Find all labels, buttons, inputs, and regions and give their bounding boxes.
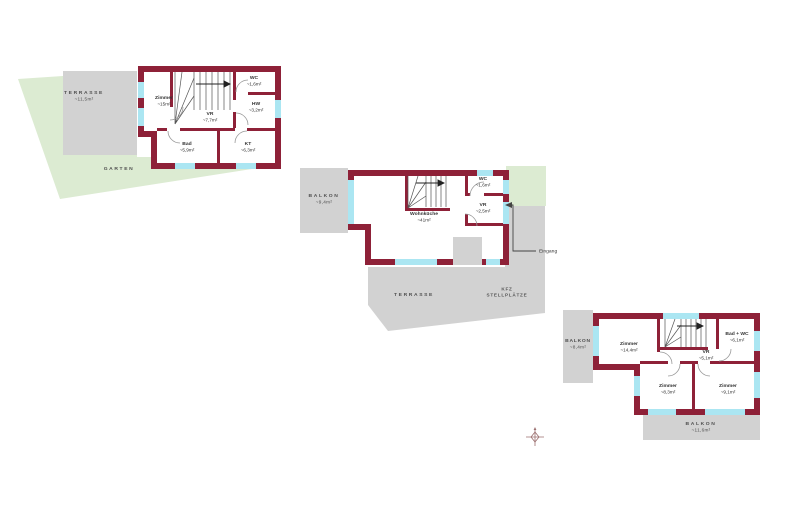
compass-icon bbox=[524, 426, 546, 448]
window bbox=[503, 180, 509, 194]
wall-segment bbox=[151, 163, 281, 169]
wall-segment bbox=[710, 361, 754, 364]
terrace-area-value: ~11,5m² bbox=[64, 96, 104, 102]
window bbox=[648, 409, 676, 415]
terrace-area-plan-a bbox=[63, 71, 137, 155]
room-label-vr: VR ~7,7m² bbox=[203, 111, 218, 123]
room-label-wc: WC ~1,6m² bbox=[247, 75, 262, 87]
window bbox=[175, 163, 195, 169]
balcony-label-plan-b: BALKON ~9,4m² bbox=[309, 193, 340, 205]
entry-door-glass bbox=[503, 202, 509, 224]
room-label-wohnkueche: Wohnküche ~41m² bbox=[410, 211, 438, 223]
terrace-step bbox=[453, 237, 482, 265]
window bbox=[593, 326, 599, 356]
green-area-plan-b bbox=[506, 166, 546, 206]
balcony-label-west: BALKON ~8,4m² bbox=[565, 338, 591, 350]
window bbox=[754, 331, 760, 351]
window bbox=[348, 180, 354, 224]
wall-segment bbox=[593, 364, 640, 370]
entrance-label: Eingang bbox=[539, 248, 557, 254]
room-label-bad-wc: Bad + WC ~6,1m² bbox=[725, 331, 748, 343]
room-label-wc: WC ~1,6m² bbox=[476, 176, 491, 188]
room-label-vr: VR ~5,1m² bbox=[699, 349, 714, 361]
garden-label: GARTEN bbox=[104, 166, 135, 172]
terrace-label: TERRASSE ~11,5m² bbox=[64, 90, 104, 102]
room-label-zimmer-so: Zimmer ~9,1m² bbox=[719, 383, 737, 395]
room-label-hw: HW ~3,2m² bbox=[249, 101, 264, 113]
terrace-label-plan-b: TERRASSE bbox=[394, 292, 434, 298]
wall-segment bbox=[484, 193, 503, 196]
window bbox=[138, 108, 144, 126]
wall-segment bbox=[465, 223, 503, 226]
garden-name: GARTEN bbox=[104, 166, 135, 172]
window bbox=[138, 82, 144, 98]
room-label-bad: Bad ~5,9m² bbox=[180, 141, 195, 153]
wall-segment bbox=[716, 319, 719, 349]
wall-segment bbox=[217, 131, 220, 163]
room-label-vr: VR ~2,5m² bbox=[476, 202, 491, 214]
wall-segment bbox=[754, 313, 760, 415]
window bbox=[395, 259, 437, 265]
window bbox=[236, 163, 256, 169]
wall-segment bbox=[692, 364, 695, 409]
wall-segment bbox=[180, 128, 235, 131]
window bbox=[486, 259, 500, 265]
balcony-label-south: BALKON ~11,6m² bbox=[686, 421, 717, 433]
window bbox=[275, 100, 281, 118]
room-label-zimmer-sw: Zimmer ~8,3m² bbox=[659, 383, 677, 395]
wall-segment bbox=[233, 112, 236, 128]
room-label-zimmer-gross: Zimmer ~14,4m² bbox=[620, 341, 638, 353]
window bbox=[634, 376, 640, 396]
wall-segment bbox=[138, 66, 281, 72]
wall-segment bbox=[247, 128, 275, 131]
wall-segment bbox=[640, 361, 668, 364]
window bbox=[705, 409, 745, 415]
wall-segment bbox=[465, 193, 470, 196]
window bbox=[663, 313, 699, 319]
wall-segment bbox=[680, 361, 698, 364]
wall-segment bbox=[248, 92, 275, 95]
room-label-kt: KT ~6,3m² bbox=[241, 141, 256, 153]
parking-label: KFZ STELLPLÄTZE bbox=[487, 286, 528, 298]
room-label-zimmer: Zimmer ~15m² bbox=[155, 95, 173, 107]
wall-segment bbox=[233, 72, 236, 100]
wall-segment bbox=[157, 128, 167, 131]
wall-segment bbox=[138, 66, 144, 137]
window bbox=[754, 372, 760, 398]
floorplan-canvas: TERRASSE ~11,5m² GARTEN Zimmer ~15m² WC … bbox=[0, 0, 800, 506]
floor-slab bbox=[634, 364, 760, 415]
wall-segment bbox=[405, 176, 408, 211]
